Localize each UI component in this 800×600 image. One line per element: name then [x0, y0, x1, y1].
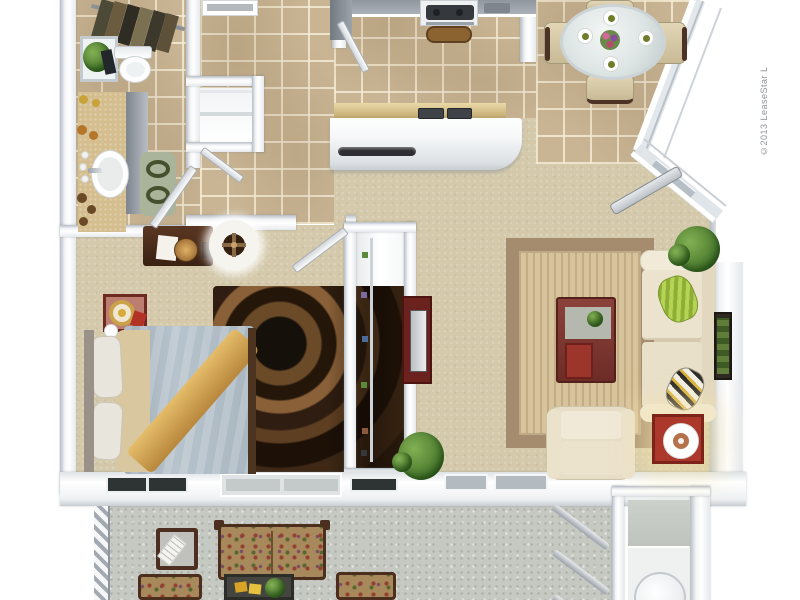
hall-window — [350, 477, 398, 492]
lamp-finial — [678, 438, 684, 444]
red-side-table — [652, 414, 704, 464]
floor-plant-leaf — [392, 452, 412, 472]
candle — [79, 217, 88, 226]
kitchen-mat — [426, 26, 472, 43]
armchair — [546, 406, 634, 480]
soap — [81, 175, 89, 183]
table-plant — [587, 311, 603, 327]
counter-item — [89, 131, 98, 140]
dresser-plate — [174, 238, 198, 262]
burner — [433, 9, 440, 16]
counter-item — [92, 99, 100, 107]
armchair-arm — [547, 409, 561, 479]
cushion-seam — [271, 531, 273, 575]
copyright-watermark: ©2013 LeaseStar L — [759, 6, 775, 156]
ceiling-fan — [209, 220, 259, 270]
closet-item — [362, 252, 368, 258]
kitchen-counter-left — [352, 0, 422, 17]
storage-wall-left — [612, 486, 624, 600]
kitchen-counter-right — [478, 0, 536, 17]
burner — [456, 9, 463, 16]
closet-item — [362, 428, 368, 434]
closet-item — [361, 382, 367, 388]
corner-plant-leaf — [668, 244, 690, 266]
oven-handle — [426, 22, 474, 25]
bedroom-window — [106, 476, 188, 493]
wall-art — [714, 312, 732, 380]
floor-plan: ©2013 LeaseStar L — [0, 0, 800, 600]
patio-coffee-table — [224, 574, 294, 600]
closet-item — [362, 336, 368, 342]
storage-wall-right — [690, 486, 710, 600]
bar-tray — [447, 108, 472, 119]
patio-sliding-door — [220, 473, 342, 497]
chair-frame — [682, 27, 687, 61]
patio-rail-left — [94, 506, 110, 600]
wall-closet-left — [344, 222, 356, 478]
food — [608, 15, 615, 22]
mat-ring — [146, 160, 170, 178]
patio-loveseat — [218, 524, 326, 580]
armchair-arm — [621, 409, 635, 479]
flower-centerpiece — [600, 30, 620, 50]
book — [249, 583, 262, 594]
plate-center — [118, 309, 126, 317]
place-setting — [603, 10, 619, 26]
range-stove — [420, 0, 478, 26]
armchair-seat — [559, 441, 625, 475]
food — [582, 33, 589, 40]
wall-closet-top — [344, 222, 416, 232]
patio-chair-right — [336, 572, 396, 600]
closet-item — [361, 292, 367, 298]
red-tray — [565, 343, 593, 379]
counter-item — [77, 125, 87, 135]
bed-footboard — [248, 328, 256, 474]
door-panel — [226, 479, 280, 491]
patio-chair-left — [138, 574, 202, 600]
bed-pillow — [90, 335, 123, 398]
toilet-seat — [126, 62, 145, 77]
bar-tray — [418, 108, 444, 119]
cooktop — [426, 5, 474, 20]
counter-item — [79, 95, 88, 104]
appliance-panel — [207, 4, 253, 11]
sink-basin — [97, 157, 123, 191]
soap — [81, 151, 89, 159]
bed-headboard — [84, 330, 94, 472]
place-setting — [603, 56, 619, 72]
shelf-edge — [200, 90, 252, 93]
door-panel — [284, 479, 338, 491]
chair-frame — [545, 27, 550, 61]
fan-hub — [223, 234, 245, 256]
food — [608, 61, 615, 68]
tv-console — [402, 296, 432, 384]
living-window-left — [444, 474, 488, 491]
entry-door — [610, 166, 683, 215]
breakfast-bar-front — [330, 118, 522, 170]
art-canvas — [717, 318, 729, 374]
kitchen-sink — [484, 3, 510, 13]
place-setting — [638, 30, 654, 46]
faucet — [88, 168, 102, 173]
dresser — [143, 226, 213, 266]
bathroom-sink — [91, 150, 129, 198]
wall-linen-closet-right — [252, 76, 264, 152]
candle — [77, 193, 87, 203]
stacked-appliance — [202, 0, 258, 16]
candle — [87, 205, 96, 214]
food — [643, 35, 650, 42]
soap — [79, 163, 87, 171]
tv-screen — [410, 310, 427, 372]
coffee-table — [556, 297, 616, 383]
shelf-edge — [200, 112, 252, 116]
storage-shelf — [628, 500, 690, 546]
place-setting — [577, 28, 593, 44]
fan-center — [231, 242, 237, 248]
toilet-bowl — [119, 56, 151, 83]
armchair-back — [557, 411, 625, 439]
dishwasher-handle — [338, 147, 416, 156]
linen-closet-shelves — [200, 88, 252, 142]
book — [234, 581, 247, 593]
bed-pillow — [91, 401, 124, 460]
patio-table-plant — [265, 578, 285, 598]
closet-item — [361, 450, 367, 456]
outer-wall-left — [60, 0, 76, 494]
closet-rod-line — [370, 238, 373, 462]
window-mullion — [146, 478, 149, 491]
living-window-right — [494, 474, 548, 491]
storage-wall-top — [612, 486, 710, 496]
